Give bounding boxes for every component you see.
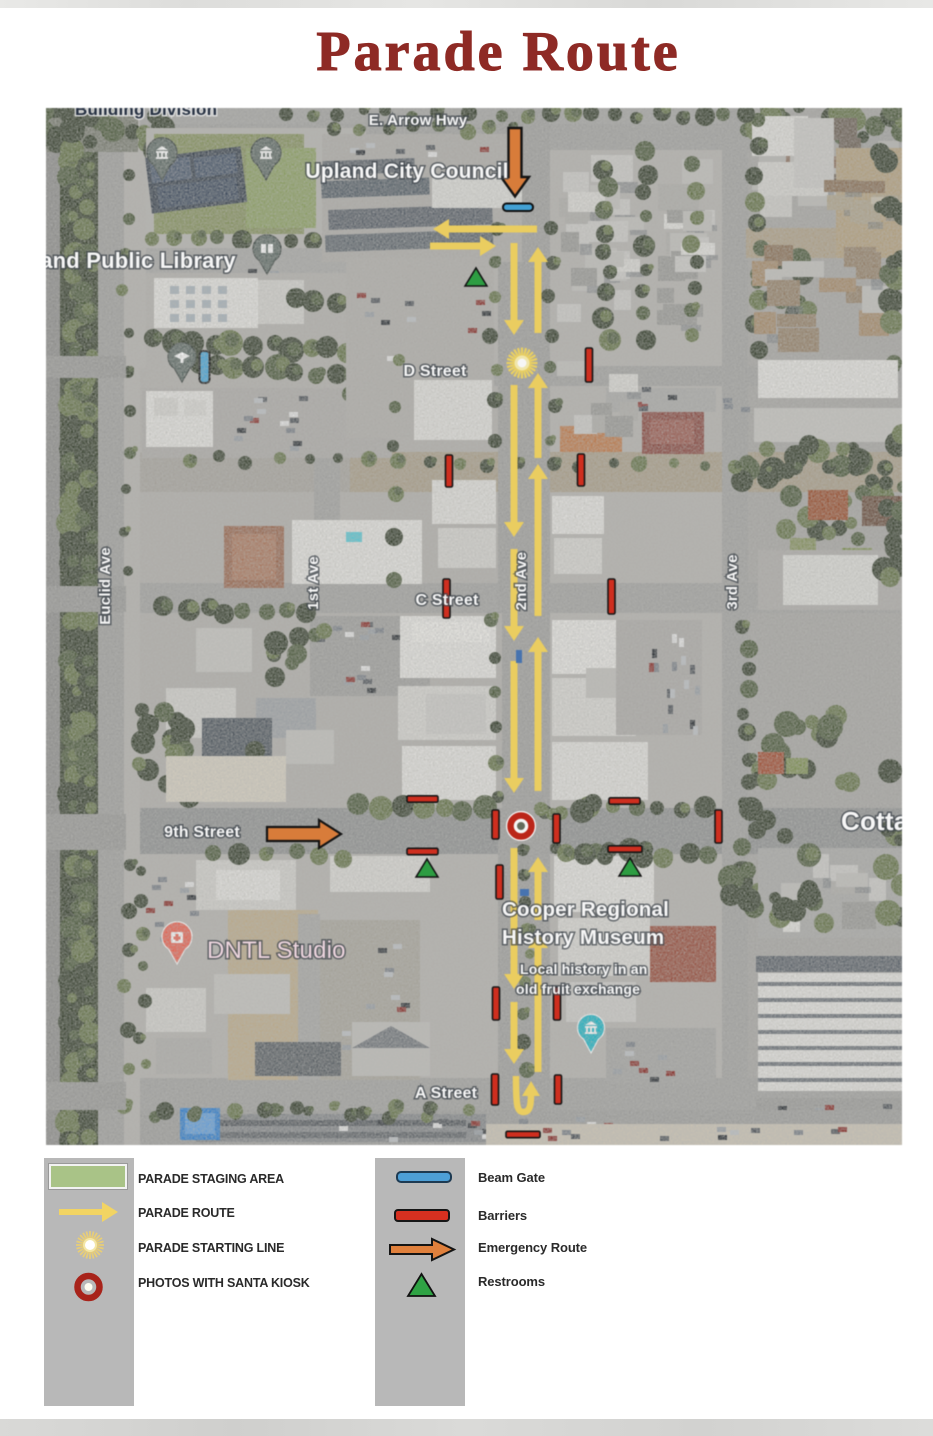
svg-text:Upland City Council: Upland City Council bbox=[305, 160, 508, 183]
svg-text:Cooper Regional: Cooper Regional bbox=[502, 898, 669, 921]
svg-text:D Street: D Street bbox=[404, 363, 467, 380]
svg-text:9th Street: 9th Street bbox=[164, 824, 240, 841]
svg-text:History Museum: History Museum bbox=[502, 926, 664, 949]
svg-text:3rd Ave: 3rd Ave bbox=[724, 554, 741, 609]
svg-text:Cottage: Cottage bbox=[841, 806, 902, 836]
svg-text:and Public Library: and Public Library bbox=[46, 248, 236, 273]
svg-text:old fruit exchange: old fruit exchange bbox=[516, 981, 640, 997]
svg-text:2nd Ave: 2nd Ave bbox=[513, 552, 530, 611]
svg-text:Local history in an: Local history in an bbox=[520, 961, 648, 977]
svg-text:Euclid Ave: Euclid Ave bbox=[97, 547, 114, 625]
svg-text:DNTL Studio: DNTL Studio bbox=[207, 937, 346, 964]
svg-text:A Street: A Street bbox=[415, 1085, 478, 1102]
svg-text:Building Division: Building Division bbox=[75, 108, 217, 119]
svg-text:E. Arrow Hwy: E. Arrow Hwy bbox=[369, 112, 468, 129]
svg-text:C Street: C Street bbox=[416, 592, 479, 609]
svg-text:1st Ave: 1st Ave bbox=[305, 556, 322, 610]
